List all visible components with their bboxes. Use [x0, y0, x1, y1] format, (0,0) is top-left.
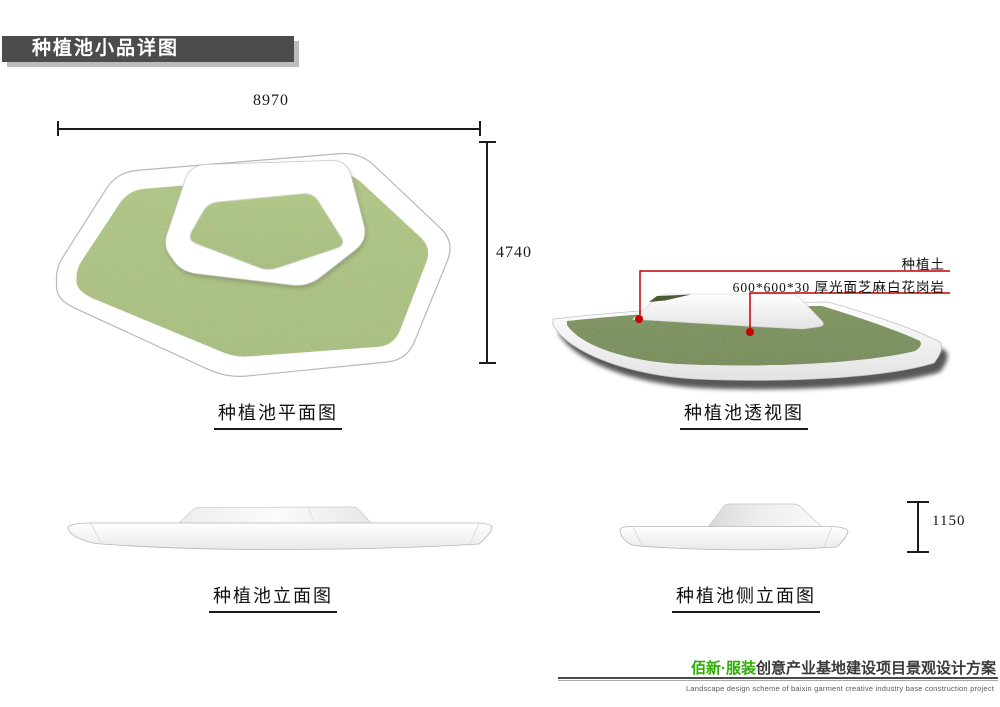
dim-width-tick-left — [57, 121, 59, 136]
plan-view-drawing — [45, 138, 475, 388]
footer-subtitle: Landscape design scheme of baixin garmen… — [686, 684, 994, 693]
footer-rule-dark — [558, 677, 998, 679]
dim-height-line — [486, 142, 488, 364]
dim-1150-tick-top — [907, 501, 929, 503]
plan-caption-wrap: 种植池平面图 — [178, 399, 378, 430]
elevation-body — [68, 523, 492, 550]
footer-rule-light — [558, 680, 998, 681]
dim-height-label: 4740 — [496, 244, 532, 262]
sheet-title-bar: 种植池小品详图 — [2, 36, 294, 62]
leader-dot-soil — [635, 315, 643, 323]
side-elevation-bump — [708, 504, 822, 527]
dim-height-tick-top — [479, 141, 496, 143]
footer-title-line: 佰新·服装创意产业基地建设项目景观设计方案 — [691, 661, 996, 677]
dim-height-tick-bottom — [479, 362, 496, 364]
annotation-soil: 种植土 — [902, 253, 946, 273]
elevation-caption: 种植池立面图 — [209, 582, 337, 613]
dim-1150-label: 1150 — [932, 513, 965, 530]
dim-width-label: 8970 — [221, 92, 321, 110]
elevation-view-drawing — [55, 493, 505, 568]
plan-caption: 种植池平面图 — [214, 399, 342, 430]
side-elevation-caption-wrap: 种植池侧立面图 — [646, 582, 846, 613]
elevation-bump — [177, 507, 373, 525]
dim-width-tick-right — [479, 121, 481, 136]
footer-brand: 佰新·服装 — [691, 660, 756, 677]
leader-dot-granite — [746, 328, 754, 336]
dim-width-line — [58, 128, 481, 130]
footer-title: 创意产业基地建设项目景观设计方案 — [756, 660, 996, 677]
perspective-caption: 种植池透视图 — [680, 399, 808, 430]
side-elevation-view-drawing — [610, 493, 860, 558]
sheet-title: 种植池小品详图 — [32, 38, 179, 59]
side-elevation-body — [620, 527, 848, 550]
elevation-caption-wrap: 种植池立面图 — [173, 582, 373, 613]
dim-1150-line — [917, 502, 919, 552]
perspective-caption-wrap: 种植池透视图 — [644, 399, 844, 430]
side-elevation-caption: 种植池侧立面图 — [672, 582, 820, 613]
dim-1150-tick-bottom — [907, 551, 929, 553]
annotation-granite: 600*600*30 厚光面芝麻白花岗岩 — [733, 276, 945, 296]
drawing-sheet: 种植池小品详图 8970 4740 — [0, 0, 1000, 707]
